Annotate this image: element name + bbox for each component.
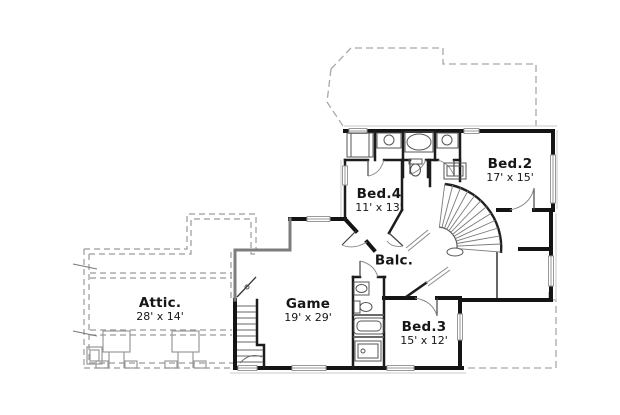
vanity-sink-1 [377, 133, 401, 148]
window-top-mid [464, 129, 479, 134]
walls-gray [235, 219, 290, 300]
door-bed3 [415, 298, 437, 316]
window-bottom-1 [238, 366, 257, 371]
room-label-attic: Attic. 28' x 14' [136, 296, 184, 322]
attic-name: Attic. [136, 296, 184, 311]
straight-staircase [237, 306, 263, 363]
roofline-bottomright-dashed [462, 292, 556, 368]
window-bay-right [549, 256, 554, 286]
bath-fixtures-top [347, 132, 466, 179]
closet-top [347, 133, 373, 157]
utility-fixture [355, 341, 381, 361]
door-wc [410, 160, 426, 174]
floor-plan-page: Attic. 28' x 14' Game 19' x 29' Balc. Be… [0, 0, 620, 415]
bed3-dims: 15' x 12' [400, 334, 448, 346]
room-label-balcony: Balc. [375, 254, 413, 269]
door-bed2 [510, 188, 534, 210]
room-label-bed3: Bed.3 15' x 12' [400, 320, 448, 346]
floor-plan-drawing [0, 0, 620, 415]
door-attic-landing [237, 277, 256, 297]
window-game-top [307, 217, 330, 222]
curved-staircase [439, 184, 501, 257]
bed4-dims: 11' x 13' [355, 201, 403, 213]
game-name: Game [284, 297, 332, 312]
room-label-bed2: Bed.2 17' x 15' [486, 157, 534, 183]
door-hall-balc [387, 233, 403, 246]
window-bottom-2 [292, 366, 326, 371]
bathtub-middle [354, 318, 384, 334]
bed2-name: Bed.2 [486, 157, 534, 172]
toilet-middle [354, 301, 372, 313]
window-bottom-3 [387, 366, 414, 371]
balcony-name: Balc. [375, 254, 413, 269]
bed4-name: Bed.4 [355, 187, 403, 202]
bed3-name: Bed.3 [400, 320, 448, 335]
toilet-top [409, 159, 422, 176]
attic-roof-outline [84, 214, 258, 368]
room-label-game: Game 19' x 29' [284, 297, 332, 323]
roofline-top-dashed [327, 48, 536, 129]
bed2-dims: 17' x 15' [486, 171, 534, 183]
attic-break-ticks [73, 264, 97, 336]
bath-fixtures-middle [354, 282, 384, 361]
window-bed2-right [551, 155, 556, 203]
window-bed4-left [343, 166, 348, 185]
door-game-balc [342, 231, 367, 247]
window-bed3-right [458, 314, 463, 340]
sink-middle [354, 282, 369, 295]
attic-dims: 28' x 14' [136, 310, 184, 322]
door-hall-bath2 [438, 160, 454, 176]
door-bed4 [368, 160, 384, 176]
game-dims: 19' x 29' [284, 311, 332, 323]
room-label-bed4: Bed.4 11' x 13' [355, 187, 403, 213]
vanity-sink-2 [437, 133, 458, 148]
bathtub-top [405, 132, 433, 152]
